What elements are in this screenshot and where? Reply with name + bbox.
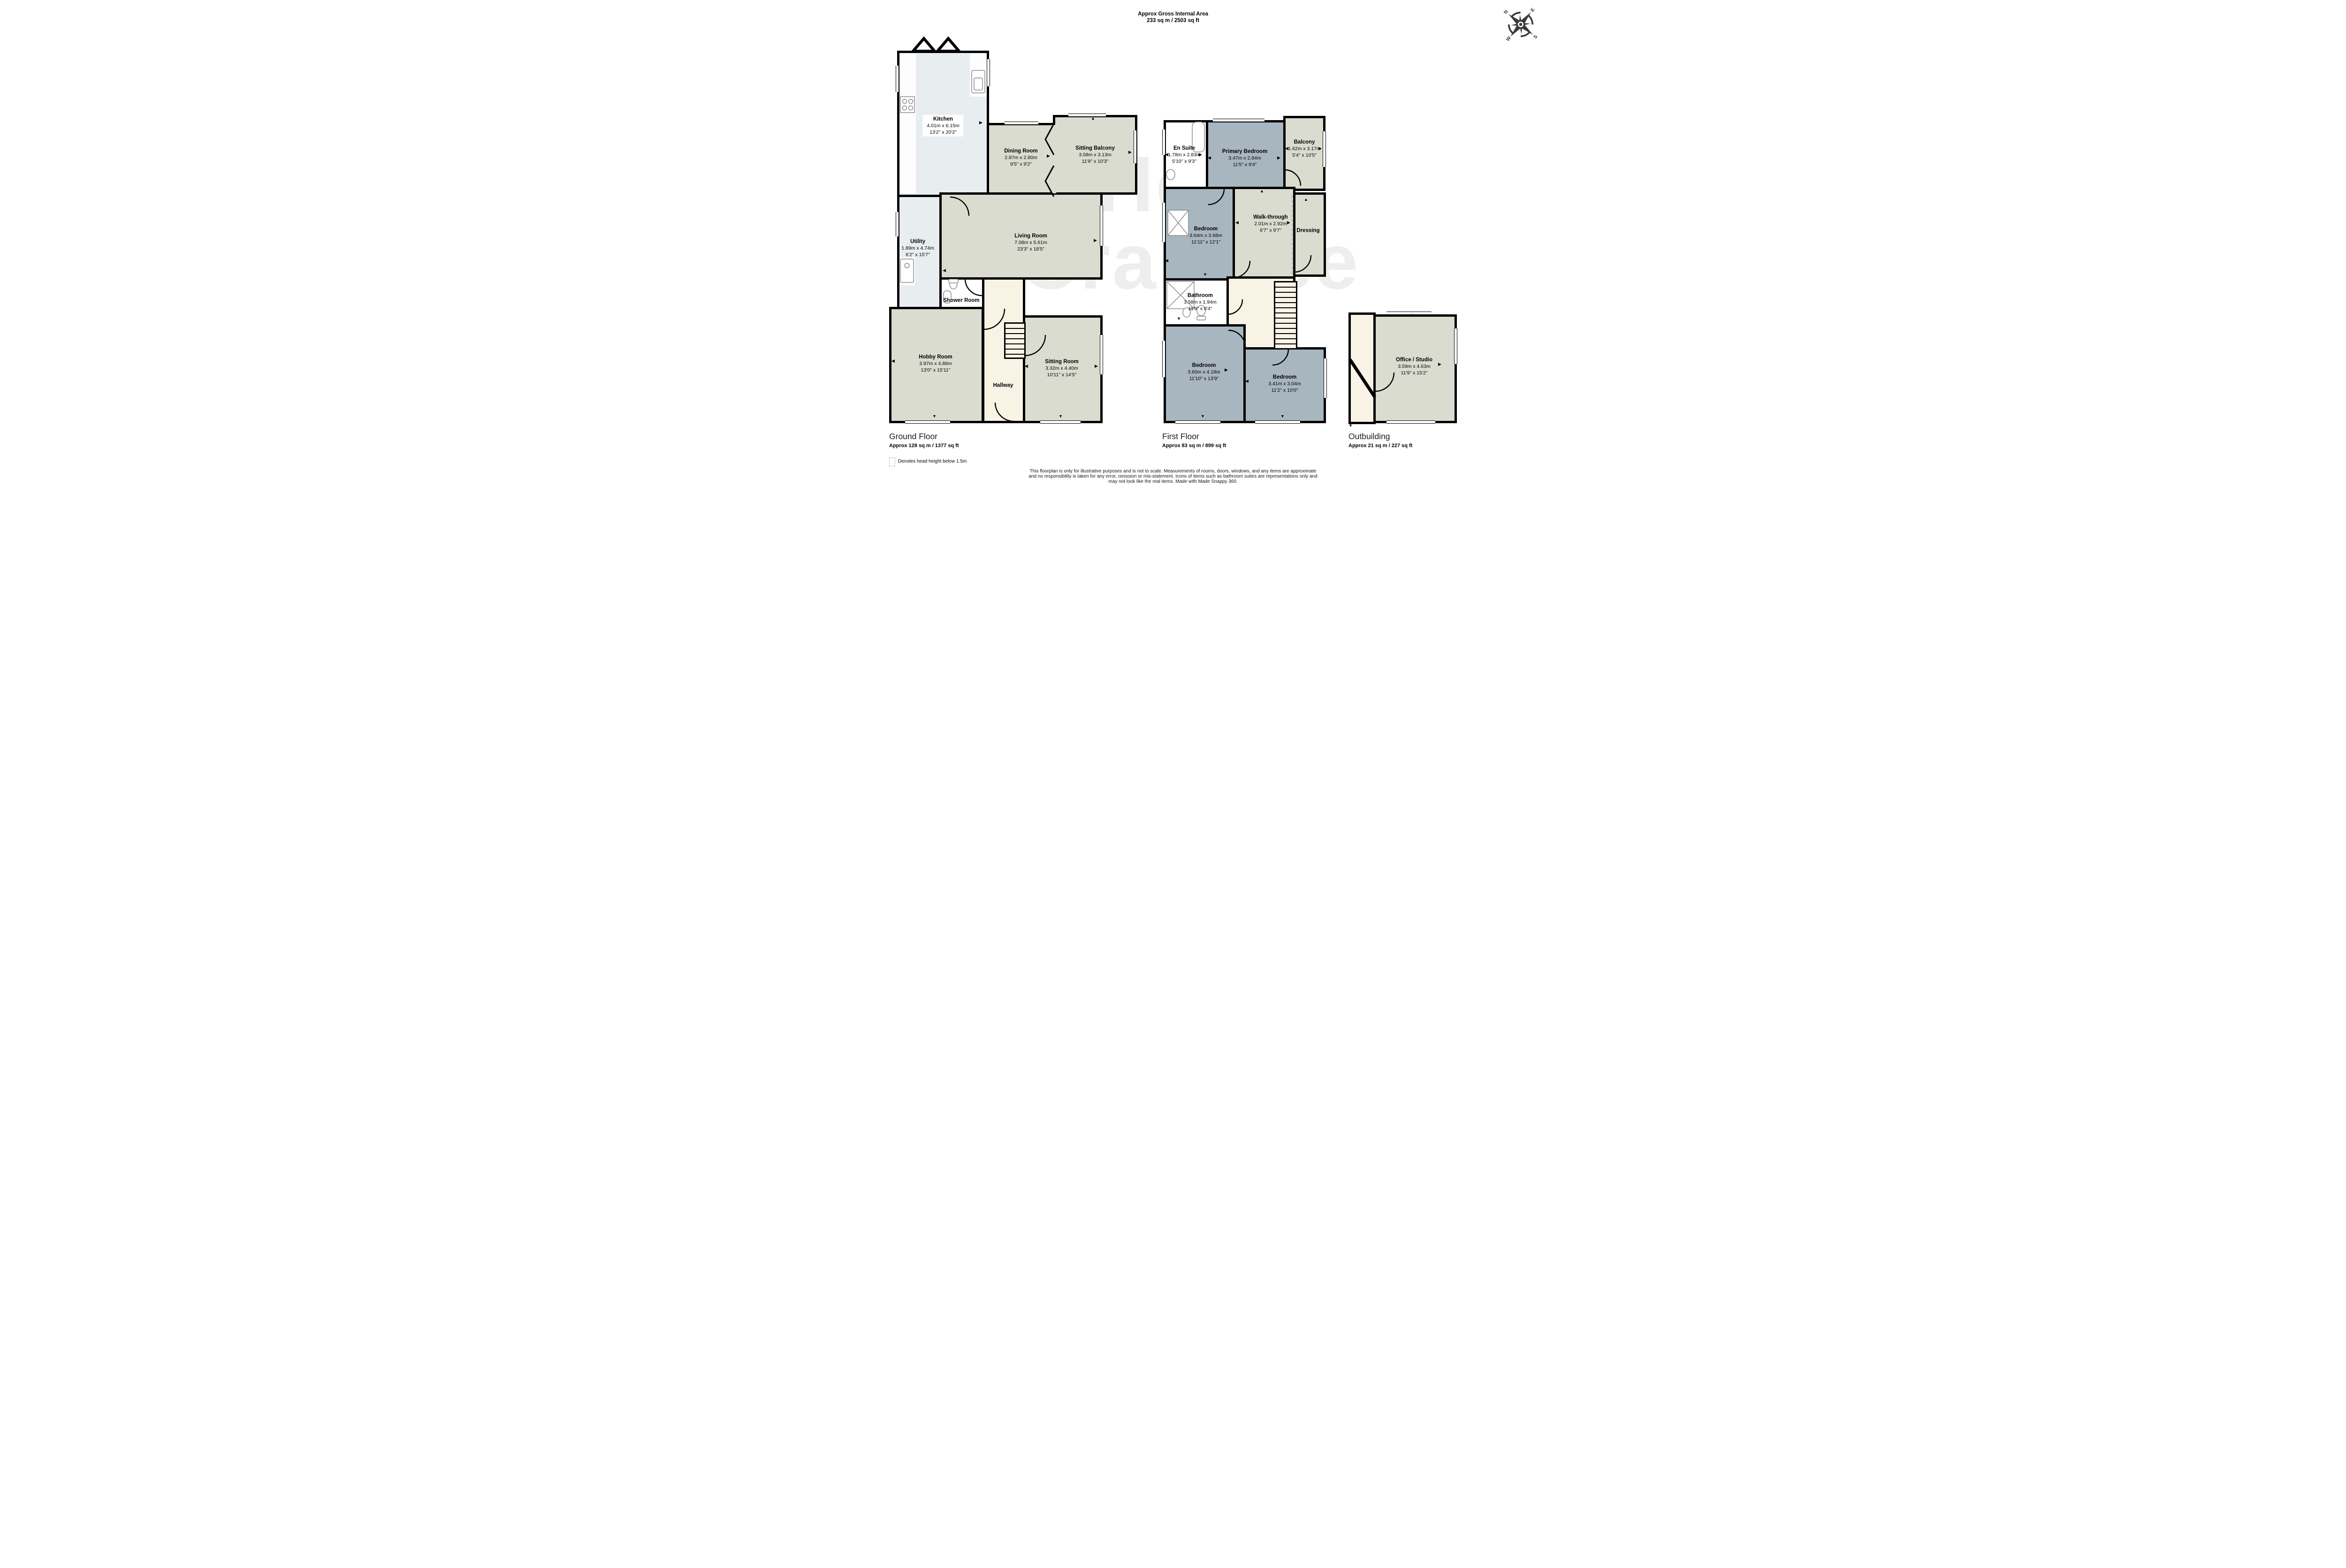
measure-arrow-icon: ◀ — [1165, 259, 1168, 263]
room-label-sitting-room: Sitting Room3.32m x 4.40m10'11" x 14'5" — [1045, 358, 1079, 378]
room-label-living: Living Room7.08m x 5.61m23'3" x 18'5" — [1014, 233, 1047, 252]
floor-title-first: First Floor — [1162, 432, 1199, 441]
window — [1100, 335, 1103, 374]
measure-arrow-icon: ◀ — [1165, 152, 1168, 157]
floor-area-ground: Approx 128 sq m / 1377 sq ft — [889, 443, 959, 449]
room-label-bedroom-3: Bedroom3.41m x 3.04m11'2" x 10'0" — [1268, 374, 1301, 394]
room-label-hallway: Hallway — [993, 382, 1013, 389]
room-label-primary-bedroom: Primary Bedroom3.47m x 2.84m11'5" x 9'4" — [1222, 148, 1268, 168]
measure-arrow-icon: ▼ — [1201, 414, 1205, 419]
measure-arrow-icon: ▶ — [1318, 146, 1322, 151]
measure-arrow-icon: ▶ — [1128, 150, 1132, 154]
measure-arrow-icon: ▶ — [1438, 362, 1441, 366]
room-label-office: Office / Studio3.59m x 4.63m11'9" x 15'2… — [1396, 357, 1432, 376]
room-label-dining: Dining Room2.87m x 2.80m9'5" x 9'2" — [1004, 148, 1038, 167]
measure-arrow-icon: ▶ — [1095, 364, 1098, 368]
room-label-ensuite: En Suite1.78m x 2.83m5'10" x 9'3" — [1168, 145, 1200, 165]
window — [1005, 122, 1038, 125]
window — [1386, 312, 1432, 315]
window — [1324, 358, 1327, 398]
measure-arrow-icon: ▲ — [1304, 198, 1308, 202]
window — [1100, 206, 1103, 246]
room-label-balcony: Balcony1.62m x 3.17m5'4" x 10'5" — [1288, 139, 1320, 159]
bifold-opening — [1051, 125, 1056, 193]
disclaimer-line-3: may not look like the real items. Made w… — [806, 479, 1540, 484]
room-porch — [1348, 312, 1376, 424]
measure-arrow-icon: ◀ — [1235, 221, 1239, 225]
measure-arrow-icon: ◀ — [1285, 146, 1288, 151]
kitchen-counter — [900, 53, 916, 193]
measure-arrow-icon: ◀ — [1245, 379, 1249, 383]
svg-text:E: E — [1530, 7, 1536, 13]
measure-arrow-icon: ▼ — [1177, 317, 1181, 321]
window — [1068, 114, 1106, 117]
window — [987, 59, 990, 86]
measure-arrow-icon: ▲ — [1091, 116, 1095, 121]
measure-arrow-icon: ▲ — [1410, 313, 1414, 317]
measure-arrow-icon: ▶ — [1287, 221, 1290, 225]
gross-area-value: 233 sq m / 2503 sq ft — [806, 18, 1540, 23]
svg-text:N: N — [1503, 9, 1509, 15]
measure-arrow-icon: ▶ — [979, 121, 983, 125]
measure-arrow-icon: ▼ — [1280, 414, 1285, 419]
window — [896, 66, 899, 92]
kitchen-sink-counter — [970, 53, 987, 97]
svg-text:S: S — [1533, 34, 1539, 40]
stairs-first — [1274, 281, 1297, 350]
measure-arrow-icon: ▼ — [1059, 414, 1063, 419]
measure-arrow-icon: ◀ — [891, 359, 895, 363]
measure-arrow-icon: ◀ — [1208, 156, 1211, 160]
measure-arrow-icon: ▶ — [1199, 152, 1202, 157]
disclaimer-line-1: This floorplan is only for illustrative … — [806, 469, 1540, 474]
window — [1454, 328, 1457, 364]
floor-title-outbuilding: Outbuilding — [1348, 432, 1390, 441]
utility-counter — [900, 257, 915, 285]
floorplan-canvas: Hern Crabtree Approx Gross Internal Area… — [806, 0, 1540, 490]
room-label-bathroom: Bathroom3.58m x 1.94m11'9" x 6'4" — [1184, 292, 1216, 312]
measure-arrow-icon: ▼ — [932, 414, 937, 419]
floor-title-ground: Ground Floor — [889, 432, 937, 441]
room-label-sitting-balcony: Sitting Balcony3.58m x 3.13m11'9" x 10'3… — [1075, 145, 1115, 165]
gross-area-title: Approx Gross Internal Area — [806, 11, 1540, 17]
floor-area-first: Approx 83 sq m / 899 sq ft — [1162, 443, 1226, 449]
room-shower — [939, 277, 984, 311]
measure-arrow-icon: ▶ — [1225, 368, 1228, 372]
window — [1175, 420, 1220, 424]
room-dressing — [1293, 192, 1326, 277]
stairs-ground — [1004, 322, 1026, 359]
measure-arrow-icon: ▲ — [953, 306, 958, 310]
room-label-hobby: Hobby Room3.97m x 4.86m13'0" x 15'11" — [919, 354, 952, 373]
disclaimer-line-2: and no responsibility is taken for any e… — [806, 474, 1540, 479]
window — [1162, 203, 1165, 242]
window — [1323, 131, 1326, 167]
room-label-bedroom-2: Bedroom3.60m x 4.18m11'10" x 13'9" — [1188, 362, 1220, 382]
measure-arrow-icon: ▶ — [1277, 156, 1280, 160]
window — [1162, 341, 1165, 377]
head-height-legend-icon — [889, 457, 895, 466]
window — [1040, 420, 1081, 424]
head-height-legend-text: Denotes head height below 1.5m — [898, 459, 967, 464]
window — [905, 420, 950, 424]
measure-arrow-icon: ▼ — [1203, 273, 1207, 277]
window — [896, 212, 899, 236]
measure-arrow-icon: ▶ — [1047, 154, 1050, 158]
measure-arrow-icon: ▼ — [1348, 424, 1353, 428]
window — [1386, 420, 1435, 424]
room-label-utility: Utility1.89m x 4.74m6'2" x 15'7" — [901, 238, 934, 258]
room-label-dressing: Dressing — [1296, 228, 1319, 235]
window — [1162, 129, 1165, 155]
roof-gable-icon — [913, 38, 959, 51]
measure-arrow-icon: ◀ — [1025, 364, 1028, 368]
window — [1213, 119, 1264, 122]
compass-rose-icon: N E S W — [1490, 0, 1540, 55]
measure-arrow-icon: ▶ — [1094, 238, 1097, 243]
room-label-shower: Shower Room — [943, 297, 979, 304]
window — [1255, 420, 1300, 424]
measure-arrow-icon: ▲ — [1260, 189, 1264, 193]
room-label-kitchen: Kitchen4.01m x 6.15m13'2" x 20'2" — [922, 115, 963, 137]
measure-arrow-icon: ◀ — [943, 268, 946, 273]
head-height-dashline — [1292, 195, 1293, 274]
room-label-walkthrough: Walk-through2.01m x 2.92m6'7" x 9'7" — [1253, 214, 1288, 234]
room-label-bedroom-1: Bedroom3.64m x 3.68m11'11" x 12'1" — [1189, 226, 1222, 245]
svg-text:W: W — [1505, 36, 1512, 43]
window — [1134, 130, 1137, 163]
floor-area-outbuilding: Approx 21 sq m / 227 sq ft — [1348, 443, 1412, 449]
